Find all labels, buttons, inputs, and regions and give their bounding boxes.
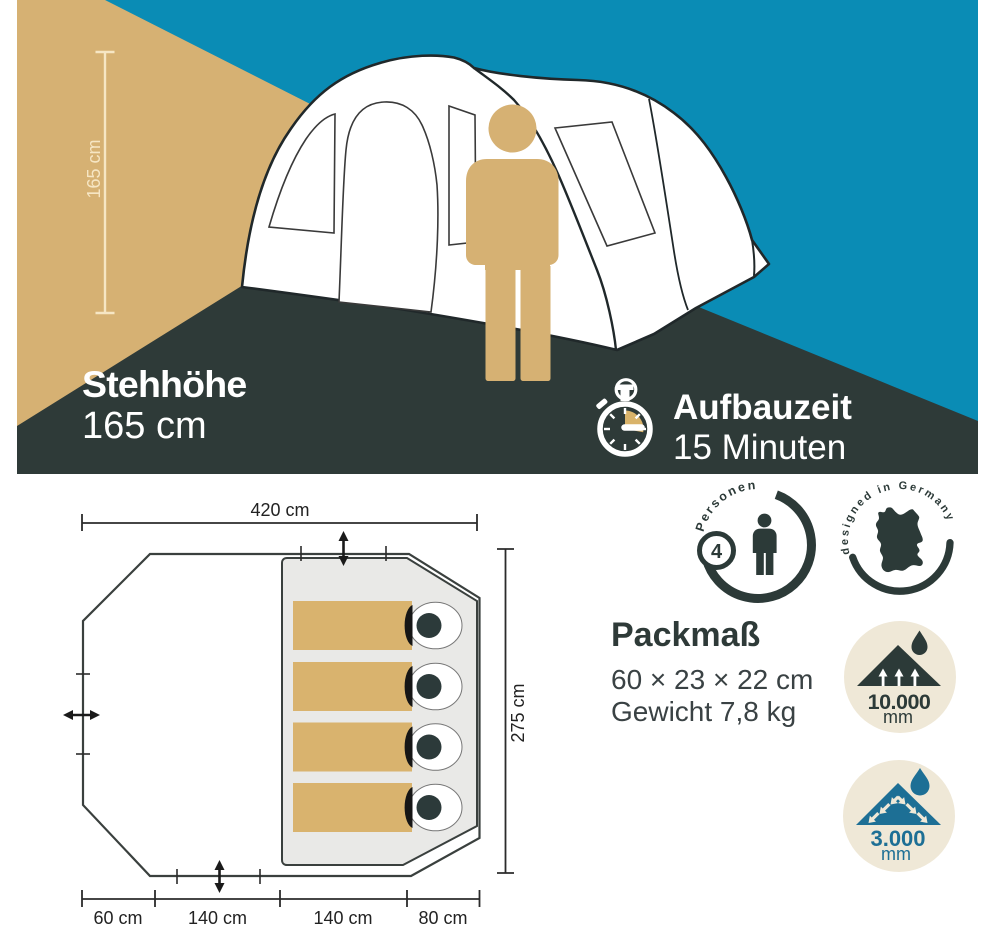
svg-text:mm: mm	[881, 844, 911, 864]
svg-text:Packmaß: Packmaß	[611, 616, 760, 654]
svg-text:Aufbauzeit: Aufbauzeit	[673, 388, 852, 427]
svg-text:60 × 23 × 22 cm: 60 × 23 × 22 cm	[611, 664, 813, 695]
svg-text:60 cm: 60 cm	[93, 908, 142, 928]
svg-text:Gewicht 7,8 kg: Gewicht 7,8 kg	[611, 696, 796, 727]
svg-text:140 cm: 140 cm	[188, 908, 247, 928]
svg-text:mm: mm	[883, 707, 913, 727]
svg-text:420 cm: 420 cm	[250, 500, 309, 520]
svg-text:165 cm: 165 cm	[84, 139, 104, 198]
svg-text:15 Minuten: 15 Minuten	[673, 428, 846, 467]
svg-text:80 cm: 80 cm	[418, 908, 467, 928]
svg-text:275 cm: 275 cm	[508, 683, 528, 742]
svg-text:165 cm: 165 cm	[82, 405, 207, 447]
svg-text:Stehhöhe: Stehhöhe	[82, 363, 246, 405]
svg-text:4: 4	[711, 541, 723, 563]
svg-text:140 cm: 140 cm	[313, 908, 372, 928]
